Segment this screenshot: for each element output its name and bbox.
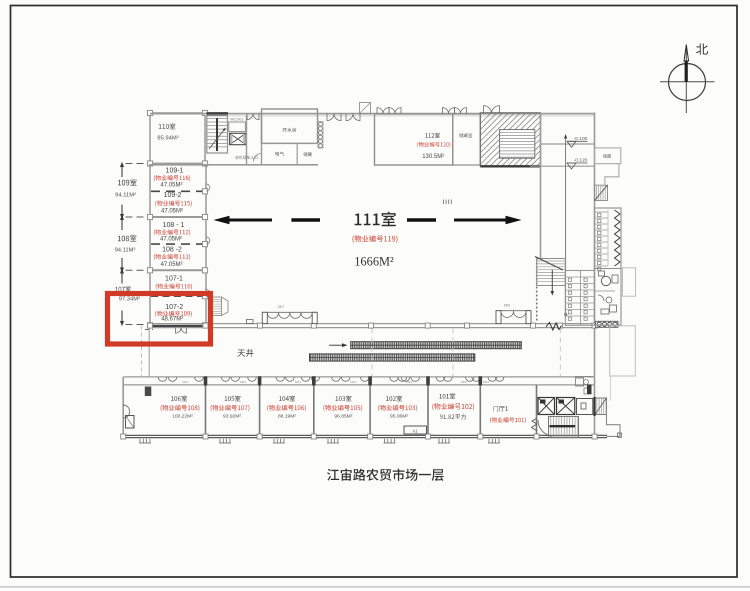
svg-text:107-1: 107-1 — [165, 275, 183, 282]
svg-text:88.19M²: 88.19M² — [278, 414, 296, 420]
svg-text:M04: M04 — [461, 380, 467, 384]
svg-text:96.85M²: 96.85M² — [334, 413, 352, 419]
svg-text:M04: M04 — [182, 380, 188, 384]
svg-text:M04: M04 — [350, 380, 356, 384]
svg-text:94.11M²: 94.11M² — [115, 247, 136, 253]
svg-text:85.94M²: 85.94M² — [157, 135, 178, 141]
svg-text:M08: M08 — [504, 304, 510, 308]
svg-text:108 - 1: 108 - 1 — [163, 222, 185, 229]
svg-text:1666M²: 1666M² — [354, 254, 394, 268]
svg-text:130.5M²: 130.5M² — [422, 154, 444, 160]
svg-text:108 -2: 108 -2 — [162, 247, 182, 254]
svg-text:A1: A1 — [412, 428, 418, 433]
svg-text:95.06M²: 95.06M² — [390, 414, 408, 420]
svg-text:M04: M04 — [295, 380, 301, 384]
svg-text:48.67M²: 48.67M² — [161, 317, 183, 323]
svg-text:M04: M04 — [483, 380, 489, 384]
svg-text:M07: M07 — [278, 305, 284, 309]
svg-text:109-2: 109-2 — [164, 192, 182, 199]
svg-text:47.05M²: 47.05M² — [161, 208, 183, 214]
svg-text:-0.100: -0.100 — [574, 136, 588, 142]
svg-text:94.11M²: 94.11M² — [115, 192, 136, 198]
svg-text:109-1: 109-1 — [166, 168, 184, 175]
svg-text:47.05M²: 47.05M² — [160, 183, 182, 189]
svg-text:-0.120: -0.120 — [574, 158, 588, 164]
svg-text:47.05M²: 47.05M² — [161, 262, 183, 268]
svg-text:47.05M²: 47.05M² — [160, 236, 182, 242]
svg-text:100.22M²: 100.22M² — [172, 414, 193, 420]
svg-text:WC2421: WC2421 — [230, 118, 244, 122]
svg-text:93.92M²: 93.92M² — [223, 414, 241, 420]
svg-text:M04: M04 — [240, 380, 246, 384]
svg-text:97.34M²: 97.34M² — [119, 296, 140, 302]
svg-text:M04: M04 — [406, 380, 412, 384]
svg-text:107-2: 107-2 — [165, 304, 183, 311]
